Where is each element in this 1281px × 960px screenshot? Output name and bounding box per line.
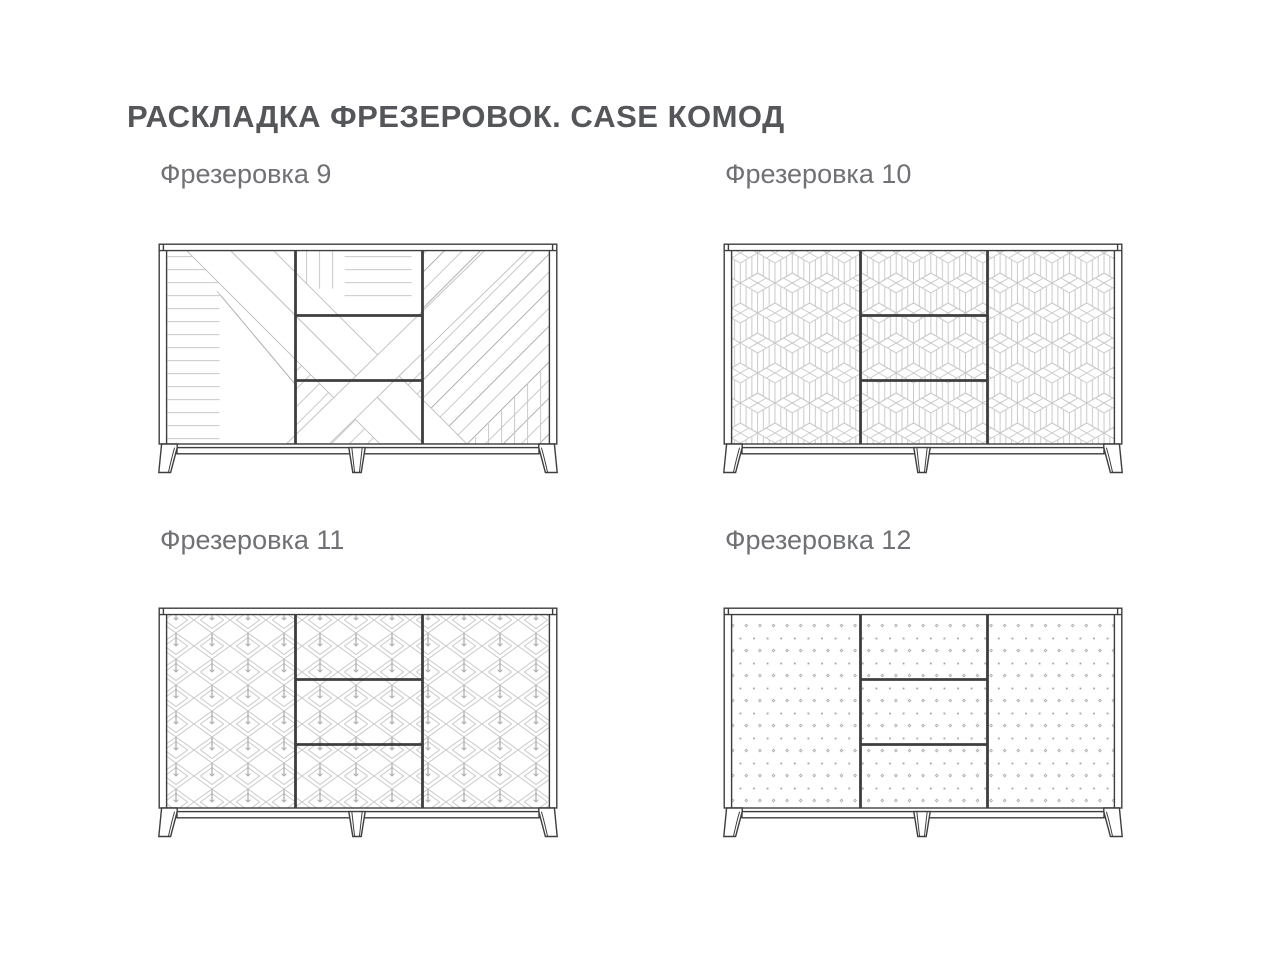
cabinet-drawing-12 — [723, 607, 1123, 841]
page-title: РАСКЛАДКА ФРЕЗЕРОВОК. CASE КОМОД — [127, 101, 785, 132]
variant-label-10: Фрезеровка 10 — [725, 161, 911, 188]
pattern-diamonds — [167, 615, 550, 808]
cabinet-drawing-9 — [158, 243, 558, 477]
cabinet-drawing-11 — [158, 607, 558, 841]
pattern-dots — [732, 615, 1115, 808]
variant-label-12: Фрезеровка 12 — [725, 527, 911, 554]
cabinet-drawing-10 — [723, 243, 1123, 477]
pattern-cubes — [732, 251, 1115, 444]
variant-label-9: Фрезеровка 9 — [160, 161, 331, 188]
variant-label-11: Фрезеровка 11 — [160, 527, 344, 554]
